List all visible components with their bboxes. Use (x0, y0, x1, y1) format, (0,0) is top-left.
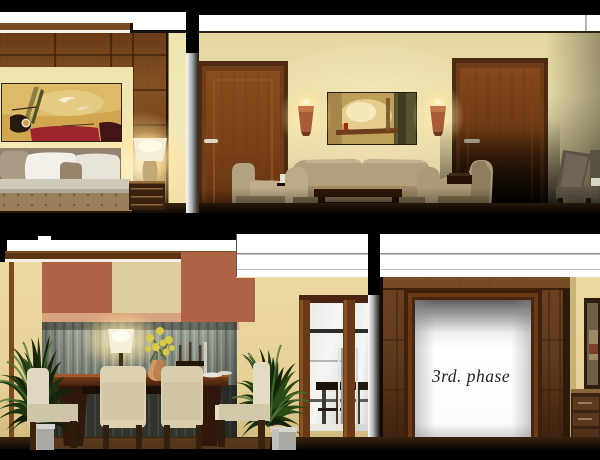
svg-text:3rd. phase: 3rd. phase (431, 366, 510, 386)
